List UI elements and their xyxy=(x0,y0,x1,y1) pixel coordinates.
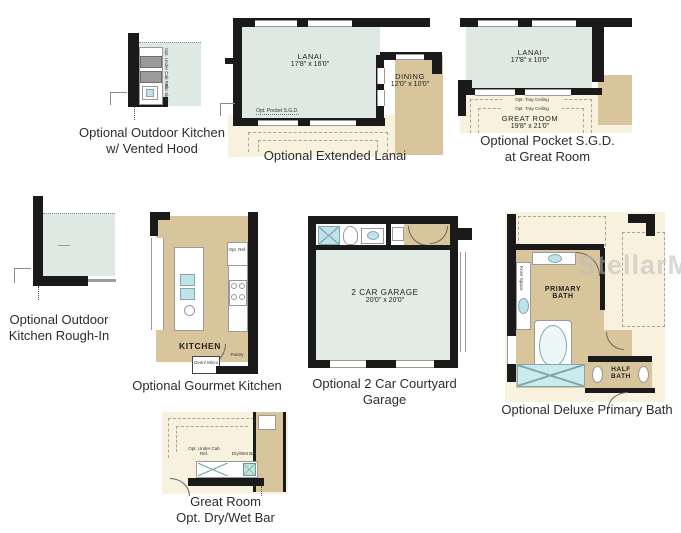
stellar-mls-watermark: StellarMLS xyxy=(578,250,681,281)
room-name: BATH xyxy=(604,373,638,380)
burner xyxy=(239,283,245,289)
caption-dry-wet-bar: Great Room Opt. Dry/Wet Bar xyxy=(148,494,303,526)
window-left xyxy=(151,238,164,330)
caption-line: Kitchen Rough-In xyxy=(9,328,109,343)
ref-cabinet xyxy=(227,242,248,266)
wall-dotted xyxy=(134,107,135,120)
lanai-label: LANAI 17'8" x 16'0" xyxy=(265,52,355,68)
room-dims: 17'8" x 16'0" xyxy=(265,61,355,68)
caption-courtyard-garage: Optional 2 Car Courtyard Garage xyxy=(292,376,477,408)
wall xyxy=(128,33,139,99)
wall-thin xyxy=(283,412,286,492)
room-name: LANAI xyxy=(265,52,355,61)
shower-fixture xyxy=(318,226,340,245)
sliding-door xyxy=(525,89,571,96)
room-name: BATH xyxy=(532,293,594,300)
room-name: 2 CAR GARAGE xyxy=(330,288,440,297)
room-name: GREAT ROOM xyxy=(480,114,580,123)
floorplan-options-sheet: Opt. Under Cab Ref. Bar Sink Optional Ou… xyxy=(0,0,681,533)
room-name: PRIMARY xyxy=(532,286,594,293)
window xyxy=(396,54,424,60)
tray-ceiling-label: Opt. Tray Ceiling xyxy=(502,106,562,111)
wall-right xyxy=(592,27,604,82)
great-room-label: GREAT ROOM 19'8" x 21'0" xyxy=(480,114,580,130)
wall-bottom xyxy=(216,366,258,374)
kitchen-label: KITCHEN xyxy=(160,341,240,351)
ref-label: Opt. Ref. xyxy=(228,247,247,252)
wall-stub xyxy=(458,80,472,88)
bar-label: Dry/Wet Bar xyxy=(224,451,264,456)
wall-bottom xyxy=(188,478,264,486)
garage-door xyxy=(330,360,366,368)
caption-line: Optional Pocket S.G.D. xyxy=(480,133,614,148)
oven-micro-label: Oven/ Micro xyxy=(193,360,219,365)
caption-line: Optional Outdoor Kitchen xyxy=(79,125,225,140)
counter-line xyxy=(88,279,116,282)
wall-stub xyxy=(225,58,233,64)
sliding-door xyxy=(258,120,298,126)
bar-sink-label: Bar Sink xyxy=(164,84,169,108)
caption-roughin: Optional Outdoor Kitchen Rough-In xyxy=(0,312,118,344)
cabinet xyxy=(258,415,276,430)
window xyxy=(478,20,518,27)
wall-stub xyxy=(458,88,466,116)
island-sink xyxy=(180,288,195,300)
toilet-fixture xyxy=(343,226,358,245)
room-dims: 19'8" x 21'0" xyxy=(480,123,580,130)
wall-line xyxy=(220,103,235,116)
shower xyxy=(517,364,585,387)
wall-stub xyxy=(458,228,472,240)
wall-left xyxy=(33,196,43,286)
garage-label: 2 CAR GARAGE 20'0" x 20'0" xyxy=(330,288,440,304)
caption-extended-lanai: Optional Extended Lanai xyxy=(235,148,435,164)
caption-line: Opt. Dry/Wet Bar xyxy=(176,510,275,525)
lanai-label: LANAI 17'8" x 10'0" xyxy=(480,48,580,64)
wall-dotted xyxy=(38,286,39,300)
caption-pocket-sgd: Optional Pocket S.G.D. at Great Room xyxy=(455,133,640,165)
wall-corner xyxy=(432,52,442,74)
island-fixture xyxy=(184,305,195,316)
dining-label: DINING 12'0" x 10'0" xyxy=(382,72,438,88)
tray-ceiling-outline xyxy=(518,216,606,246)
outdoor-area xyxy=(43,213,115,276)
grill-appliance xyxy=(140,71,162,83)
caption-gourmet-kitchen: Optional Gourmet Kitchen xyxy=(128,378,286,394)
wall-corner xyxy=(150,212,158,236)
island-sink xyxy=(180,274,195,286)
vanity-sink xyxy=(548,254,562,263)
wall-line xyxy=(14,268,31,283)
sliding-door xyxy=(310,120,356,126)
half-bath-label: HALF BATH xyxy=(604,366,638,380)
window xyxy=(255,20,297,27)
caption-line: Great Room xyxy=(190,494,261,509)
sliding-door xyxy=(475,89,515,96)
wall-bottom xyxy=(233,118,385,126)
window xyxy=(308,20,352,27)
lanai-room xyxy=(240,26,380,118)
pocket-sgd-label: Opt. Pocket S.G.D. xyxy=(256,108,299,115)
wall-stub xyxy=(646,214,655,236)
wall-right xyxy=(248,212,258,370)
room-dims: 12'0" x 10'0" xyxy=(382,81,438,88)
wall-interior xyxy=(316,245,450,250)
tray-ceiling-label: Opt. Tray Ceiling xyxy=(502,97,562,102)
under-cab-ref xyxy=(198,463,228,476)
caption-outdoor-kitchen-hood: Optional Outdoor Kitchen w/ Vented Hood xyxy=(52,125,252,157)
wall-bottom xyxy=(33,276,88,286)
window xyxy=(532,20,576,27)
burner xyxy=(231,283,237,289)
wall-divider xyxy=(386,224,391,246)
toilet-fixture xyxy=(592,366,603,383)
tick-mark xyxy=(58,245,70,246)
side-track xyxy=(460,252,466,352)
soaking-tub xyxy=(539,325,567,367)
knee-space-label: Knee Space xyxy=(519,266,524,296)
room-name: HALF xyxy=(604,366,638,373)
pocket-door xyxy=(377,90,385,106)
adjacent-tan xyxy=(598,75,632,125)
water-heater xyxy=(392,227,404,241)
garage-door xyxy=(396,360,434,368)
caption-line: at Great Room xyxy=(505,149,590,164)
room-dims: 20'0" x 20'0" xyxy=(330,297,440,304)
caption-line: Optional Outdoor xyxy=(9,312,108,327)
burner xyxy=(231,294,237,300)
sink-basin xyxy=(146,89,154,97)
sink-basin xyxy=(367,231,379,240)
room-name: LANAI xyxy=(480,48,580,57)
room-dims: 17'8" x 10'0" xyxy=(480,57,580,64)
caption-deluxe-bath: Optional Deluxe Primary Bath xyxy=(492,402,681,418)
caption-line: w/ Vented Hood xyxy=(106,141,198,156)
primary-bath-label: PRIMARY BATH xyxy=(532,286,594,300)
bar-sink xyxy=(243,463,256,476)
room-name: DINING xyxy=(382,72,438,81)
burner xyxy=(239,294,245,300)
wall-line xyxy=(110,92,127,105)
pantry-label: Pantry xyxy=(226,352,248,357)
grill-appliance xyxy=(140,56,162,68)
vanity-sink xyxy=(518,298,529,314)
sink-fixture xyxy=(638,366,649,383)
room-name: KITCHEN xyxy=(160,341,240,351)
cab-ref-label: Opt. Under Cab Ref. xyxy=(186,446,222,456)
